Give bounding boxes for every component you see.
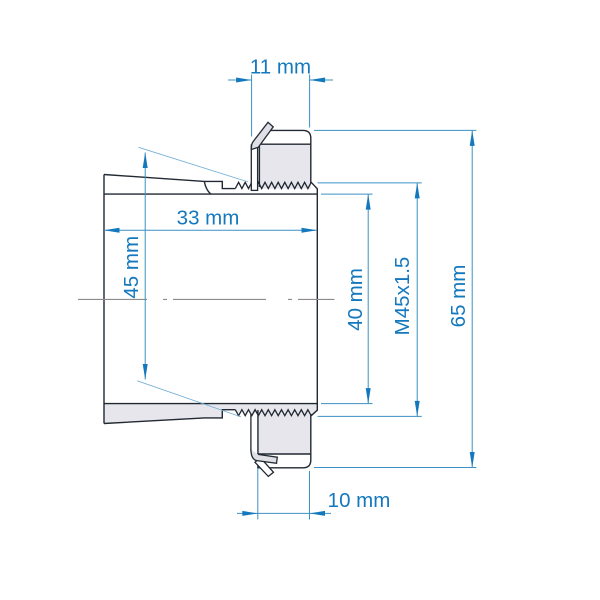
svg-text:65 mm: 65 mm [447, 265, 470, 328]
svg-text:45 mm: 45 mm [120, 236, 143, 299]
svg-text:33 mm: 33 mm [177, 207, 240, 230]
svg-text:M45x1.5: M45x1.5 [391, 257, 414, 336]
svg-text:10 mm: 10 mm [328, 489, 391, 512]
svg-text:11 mm: 11 mm [250, 56, 311, 79]
svg-text:40 mm: 40 mm [344, 268, 367, 331]
